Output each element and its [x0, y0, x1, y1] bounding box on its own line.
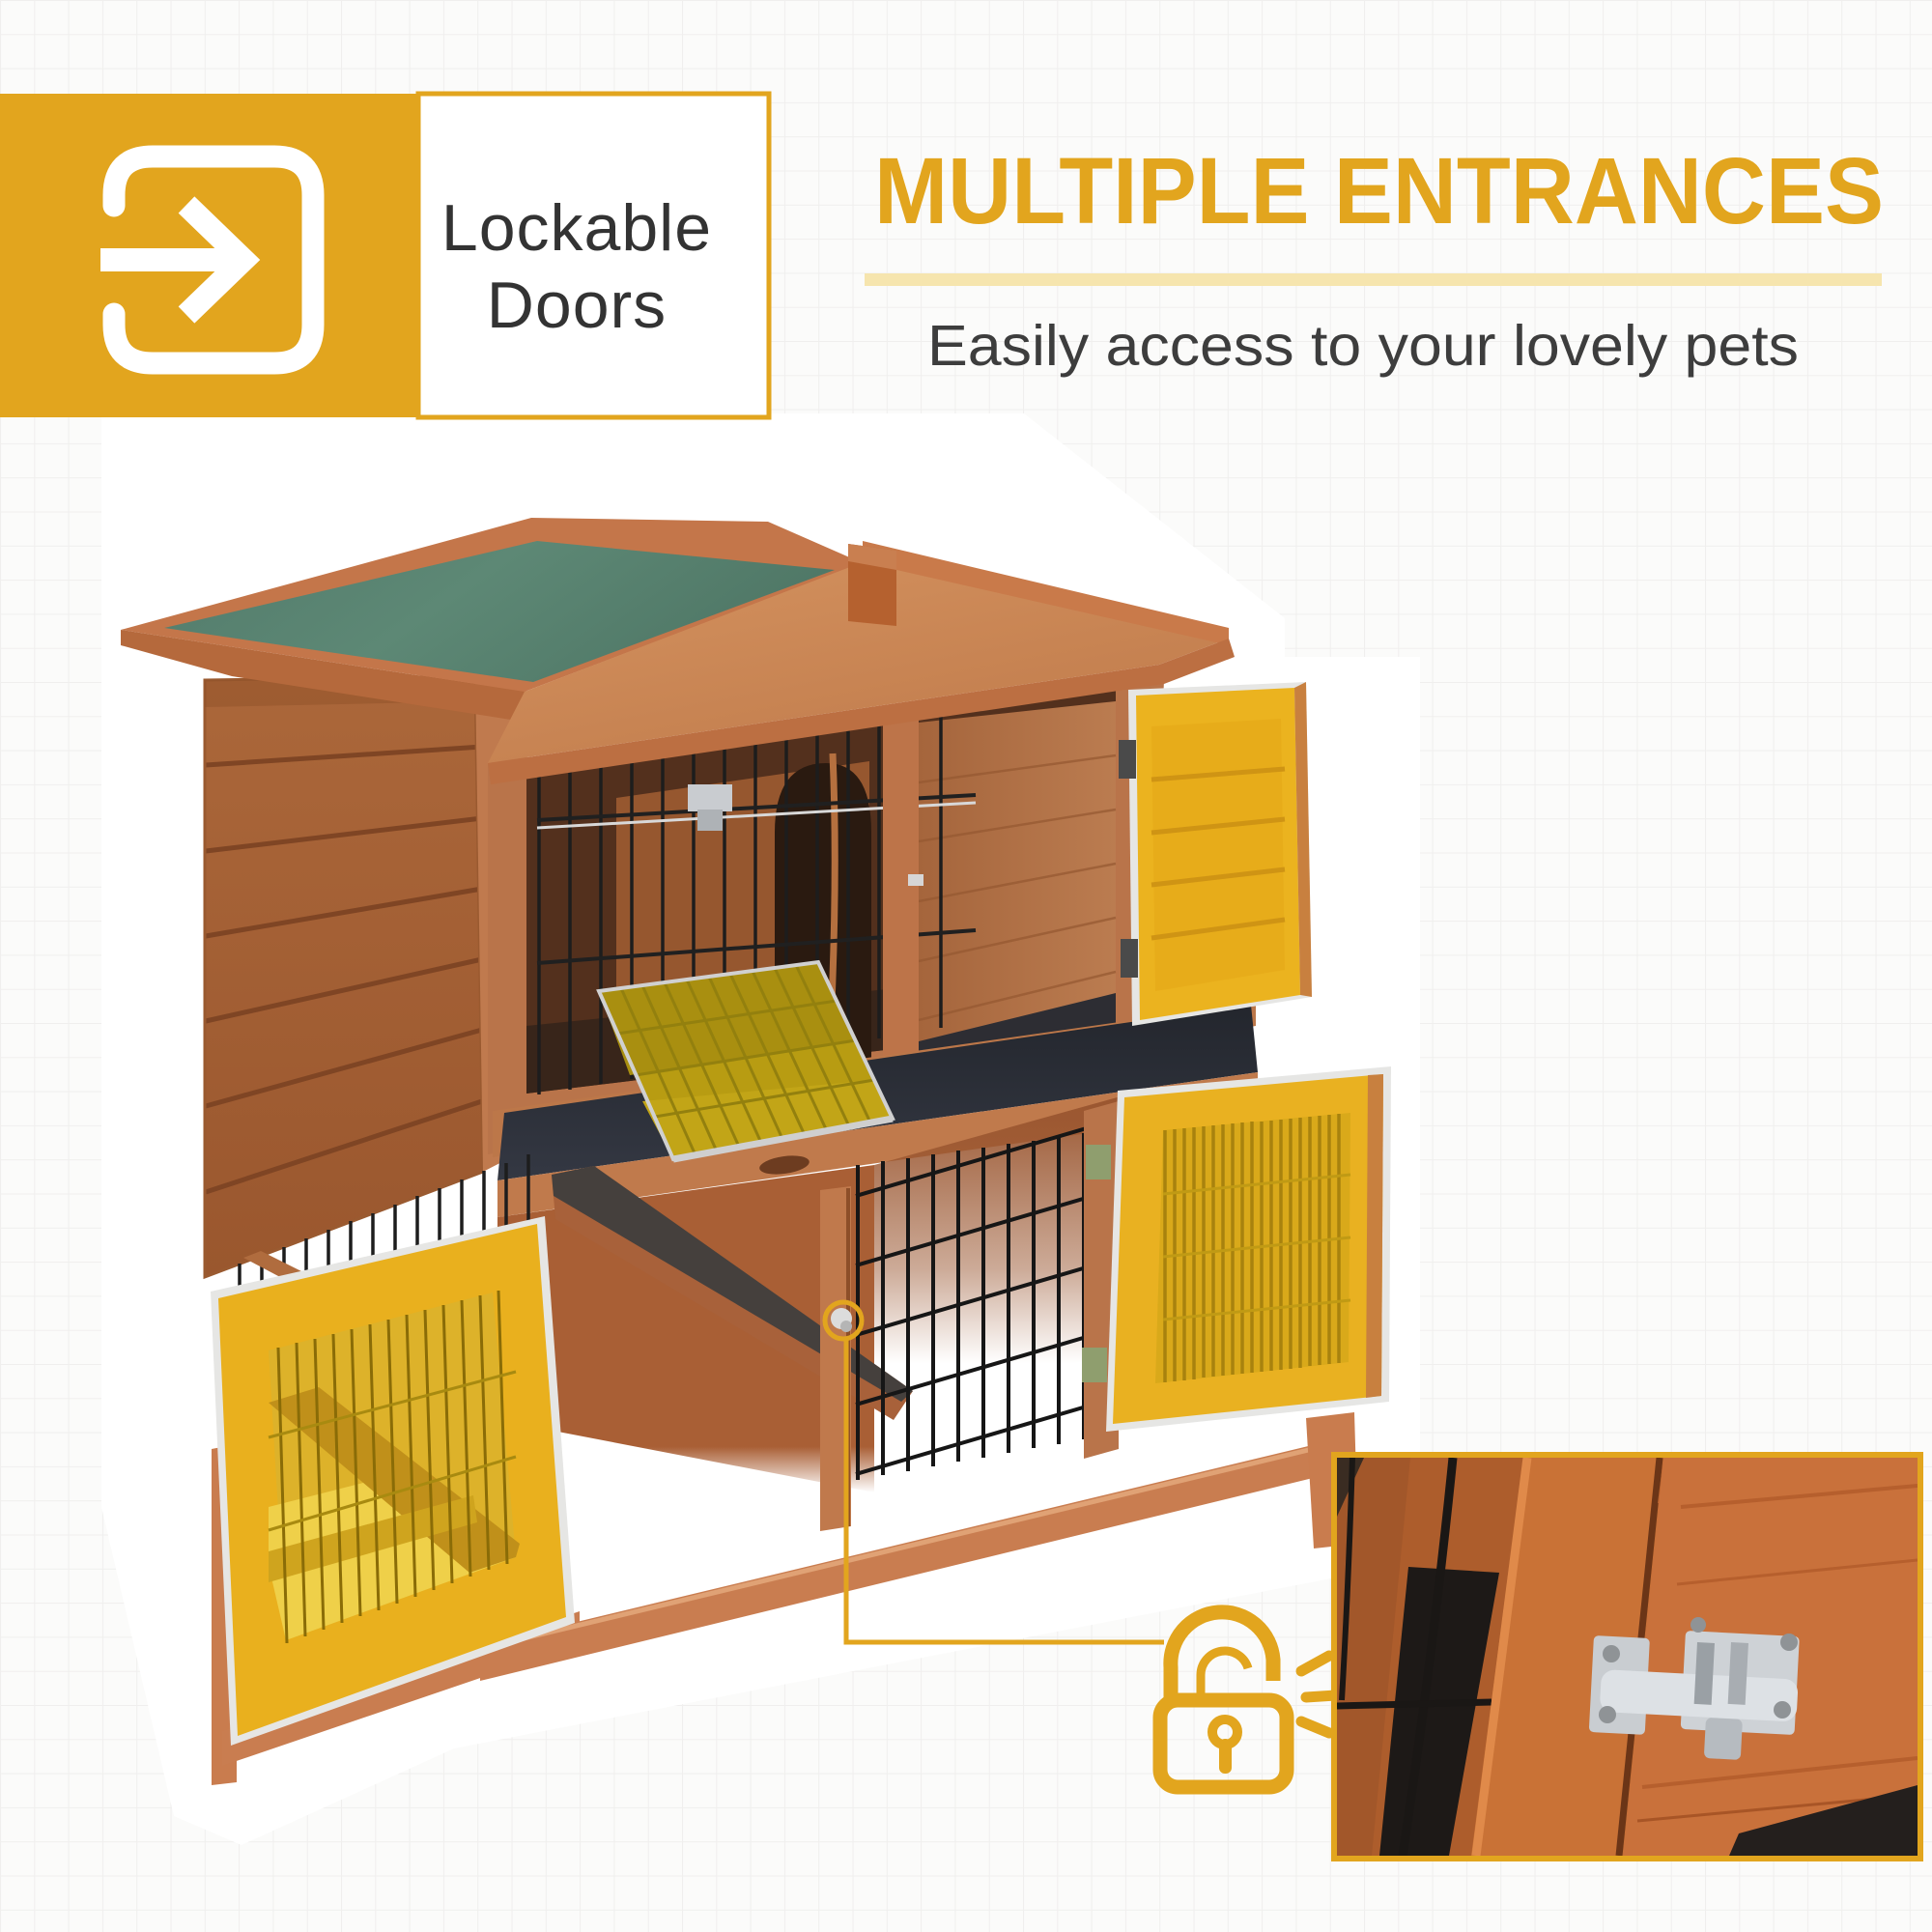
svg-text:MULTIPLE ENTRANCES: MULTIPLE ENTRANCES [874, 138, 1884, 243]
svg-text:Easily access to your lovely p: Easily access to your lovely pets [927, 314, 1799, 378]
svg-text:Lockable: Lockable [441, 191, 712, 265]
svg-text:Doors: Doors [487, 269, 667, 342]
